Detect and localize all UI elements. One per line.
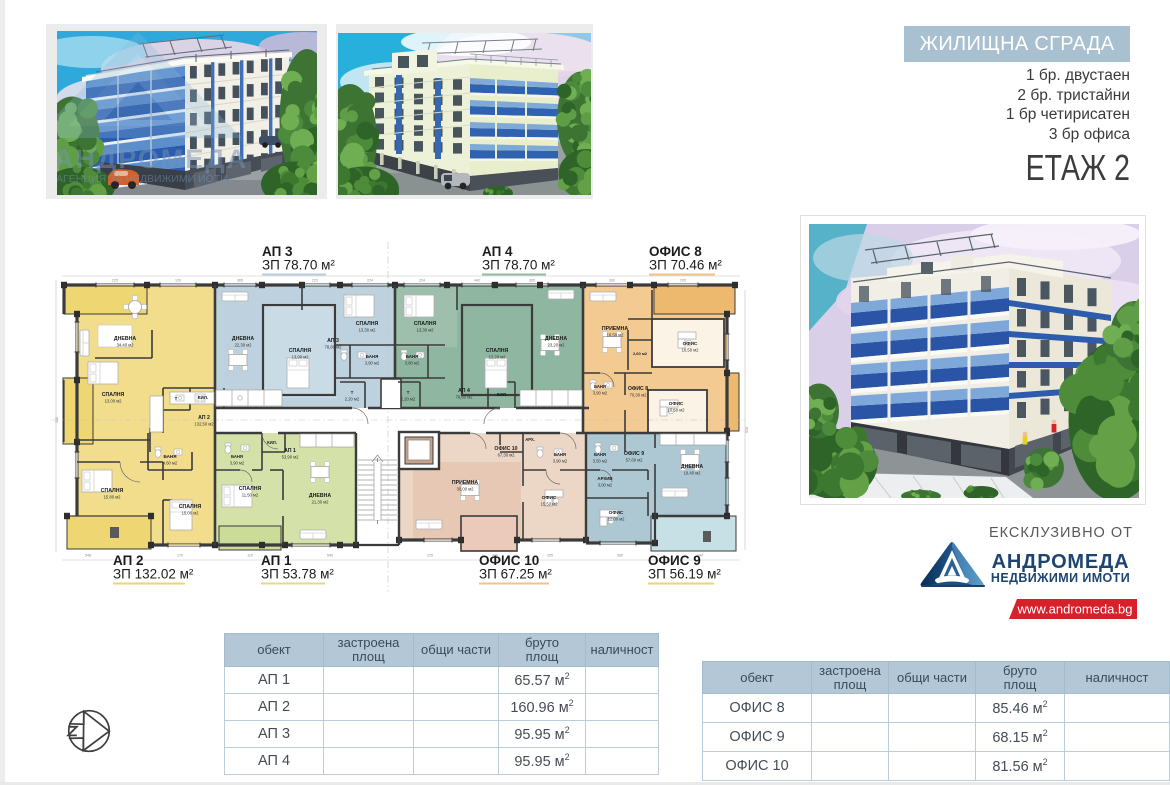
svg-text:225: 225: [112, 279, 118, 283]
svg-text:КИЛ.: КИЛ.: [198, 395, 208, 400]
svg-text:СПАЛНЯ: СПАЛНЯ: [101, 488, 124, 494]
svg-text:16,50 м2: 16,50 м2: [607, 333, 625, 338]
svg-text:2,20 м2: 2,20 м2: [401, 397, 416, 402]
svg-text:ПРИЕМНА: ПРИЕМНА: [602, 326, 628, 332]
svg-text:15,50 м2: 15,50 м2: [541, 502, 559, 507]
svg-text:13,30 м2: 13,30 м2: [417, 328, 435, 333]
svg-text:224: 224: [367, 279, 373, 283]
svg-text:22,30 м2: 22,30 м2: [235, 343, 253, 348]
svg-text:67,30 м2: 67,30 м2: [498, 453, 516, 458]
svg-text:540: 540: [327, 554, 333, 558]
svg-text:132,50 м2: 132,50 м2: [194, 422, 214, 427]
svg-text:3,50 м2: 3,50 м2: [593, 459, 608, 464]
svg-text:10,50 м2: 10,50 м2: [682, 348, 700, 353]
svg-text:4.60 м2: 4.60 м2: [163, 461, 178, 466]
svg-text:23,20 м2: 23,20 м2: [548, 343, 566, 348]
svg-text:ОФИС 8: ОФИС 8: [628, 386, 648, 392]
svg-text:АП 2: АП 2: [198, 415, 210, 421]
svg-text:БАНЯ: БАНЯ: [594, 452, 606, 457]
svg-text:13,90 м2: 13,90 м2: [292, 355, 310, 360]
svg-text:ОФИС: ОФИС: [542, 495, 557, 501]
svg-text:КИЛ.: КИЛ.: [267, 440, 277, 445]
svg-text:ОФИС: ОФИС: [683, 341, 698, 347]
svg-text:ДНЕВНА: ДНЕВНА: [232, 336, 254, 342]
svg-text:442: 442: [474, 279, 480, 283]
svg-text:Т: Т: [175, 396, 178, 401]
svg-text:АП 3: АП 3: [327, 338, 339, 344]
svg-text:205: 205: [547, 554, 553, 558]
svg-text:3,90 м2: 3,90 м2: [230, 461, 245, 466]
svg-text:ОФИС 10: ОФИС 10: [494, 446, 517, 452]
svg-text:2,20 м2: 2,20 м2: [345, 397, 360, 402]
svg-text:АП 1: АП 1: [284, 448, 296, 454]
svg-text:57,60 м2: 57,60 м2: [626, 458, 644, 463]
svg-text:АНДРОМЕДА: АНДРОМЕДА: [54, 144, 248, 174]
svg-text:ОФИС: ОФИС: [669, 401, 684, 407]
svg-text:АРХИВ: АРХИВ: [597, 476, 612, 481]
svg-text:СПАЛНЯ: СПАЛНЯ: [289, 348, 312, 354]
svg-text:13,30 м2: 13,30 м2: [359, 328, 377, 333]
svg-text:120: 120: [175, 279, 181, 283]
svg-text:ЗП 70.46 м²: ЗП 70.46 м²: [649, 258, 722, 273]
svg-text:БАНЯ: БАНЯ: [594, 384, 606, 389]
svg-text:170: 170: [177, 554, 183, 558]
svg-text:13.00 м2: 13.00 м2: [105, 399, 123, 404]
svg-text:516: 516: [745, 427, 749, 433]
svg-text:СПАЛНЯ: СПАЛНЯ: [356, 321, 379, 327]
svg-text:516: 516: [55, 417, 59, 423]
svg-text:70,30 м2: 70,30 м2: [630, 393, 648, 398]
svg-text:Т: Т: [407, 390, 410, 395]
svg-text:15.80 м2: 15.80 м2: [104, 495, 122, 500]
svg-text:АГЕНЦИЯ ЗА НЕДВИЖИМИ ИОТИ: АГЕНЦИЯ ЗА НЕДВИЖИМИ ИОТИ: [56, 173, 228, 185]
svg-text:www.andromeda.bg: www.andromeda.bg: [1017, 602, 1133, 617]
svg-text:ЗП 53.78 м²: ЗП 53.78 м²: [261, 567, 334, 582]
svg-text:12,20 м2: 12,20 м2: [489, 355, 507, 360]
svg-text:ДНЕВНА: ДНЕВНА: [309, 493, 331, 499]
svg-text:ЗП 78.70 м²: ЗП 78.70 м²: [262, 258, 335, 273]
svg-text:БАНЯ: БАНЯ: [406, 354, 419, 359]
svg-text:ЗП 67.25 м²: ЗП 67.25 м²: [479, 567, 552, 582]
svg-text:СПАЛНЯ: СПАЛНЯ: [414, 321, 437, 327]
svg-text:360: 360: [617, 554, 623, 558]
svg-text:БАНЯ: БАНЯ: [163, 454, 176, 459]
svg-text:10,50 м2: 10,50 м2: [668, 408, 686, 413]
svg-text:19,40 м2: 19,40 м2: [684, 471, 702, 476]
svg-text:223: 223: [312, 279, 318, 283]
svg-text:БАНЯ: БАНЯ: [366, 354, 379, 359]
svg-text:ДНЕВНА: ДНЕВНА: [681, 464, 703, 470]
svg-text:21,30 м2: 21,30 м2: [312, 500, 330, 505]
svg-text:Т: Т: [351, 390, 354, 395]
svg-text:53,90 м2: 53,90 м2: [282, 455, 300, 460]
svg-text:3,00 м2: 3,00 м2: [598, 483, 613, 488]
svg-text:СПАЛНЯ: СПАЛНЯ: [486, 348, 509, 354]
svg-text:365: 365: [529, 279, 535, 283]
svg-text:КИЛ.: КИЛ.: [497, 392, 507, 397]
svg-text:225: 225: [427, 554, 433, 558]
svg-text:ЗП 132.02 м²: ЗП 132.02 м²: [113, 567, 194, 582]
svg-text:СПАЛНЯ: СПАЛНЯ: [179, 504, 202, 510]
svg-text:3,80 м2: 3,80 м2: [405, 361, 420, 366]
svg-text:АРХ.: АРХ.: [525, 437, 535, 442]
svg-text:ПРИЕМНА: ПРИЕМНА: [452, 480, 478, 486]
svg-text:15.00 м2: 15.00 м2: [182, 511, 200, 516]
svg-text:СПАЛНЯ: СПАЛНЯ: [239, 486, 262, 492]
svg-text:ДНЕВНА: ДНЕВНА: [114, 336, 136, 342]
svg-text:224: 224: [419, 279, 425, 283]
svg-text:3,90 м2: 3,90 м2: [365, 361, 380, 366]
svg-text:360: 360: [609, 279, 615, 283]
svg-text:548: 548: [85, 554, 91, 558]
svg-text:ОФИС 9: ОФИС 9: [624, 451, 644, 457]
svg-text:ЗП 56.19 м²: ЗП 56.19 м²: [648, 567, 721, 582]
svg-text:БАНЯ: БАНЯ: [231, 454, 243, 459]
svg-text:365: 365: [237, 279, 243, 283]
svg-text:ОФИС: ОФИС: [609, 510, 624, 516]
svg-text:78,80 м2: 78,80 м2: [325, 345, 343, 350]
svg-text:АП 4: АП 4: [458, 388, 470, 394]
svg-text:3,90 м2: 3,90 м2: [593, 391, 608, 396]
svg-text:205: 205: [680, 279, 686, 283]
svg-text:ДНЕВНА: ДНЕВНА: [545, 336, 567, 342]
svg-text:3,90 м2: 3,90 м2: [553, 459, 568, 464]
svg-text:110: 110: [247, 554, 253, 558]
svg-text:2,60 м2: 2,60 м2: [633, 351, 648, 356]
svg-text:БАНЯ: БАНЯ: [554, 452, 566, 457]
svg-text:12,00 м2: 12,00 м2: [608, 517, 626, 522]
svg-text:30,00 м2: 30,00 м2: [457, 487, 475, 492]
svg-text:34.40 м2: 34.40 м2: [117, 343, 135, 348]
svg-text:СПАЛНЯ: СПАЛНЯ: [102, 392, 125, 398]
svg-text:ЗП 78.70 м²: ЗП 78.70 м²: [482, 258, 555, 273]
svg-text:78,80 м2: 78,80 м2: [456, 395, 474, 400]
svg-text:11,50 м2: 11,50 м2: [242, 493, 259, 498]
